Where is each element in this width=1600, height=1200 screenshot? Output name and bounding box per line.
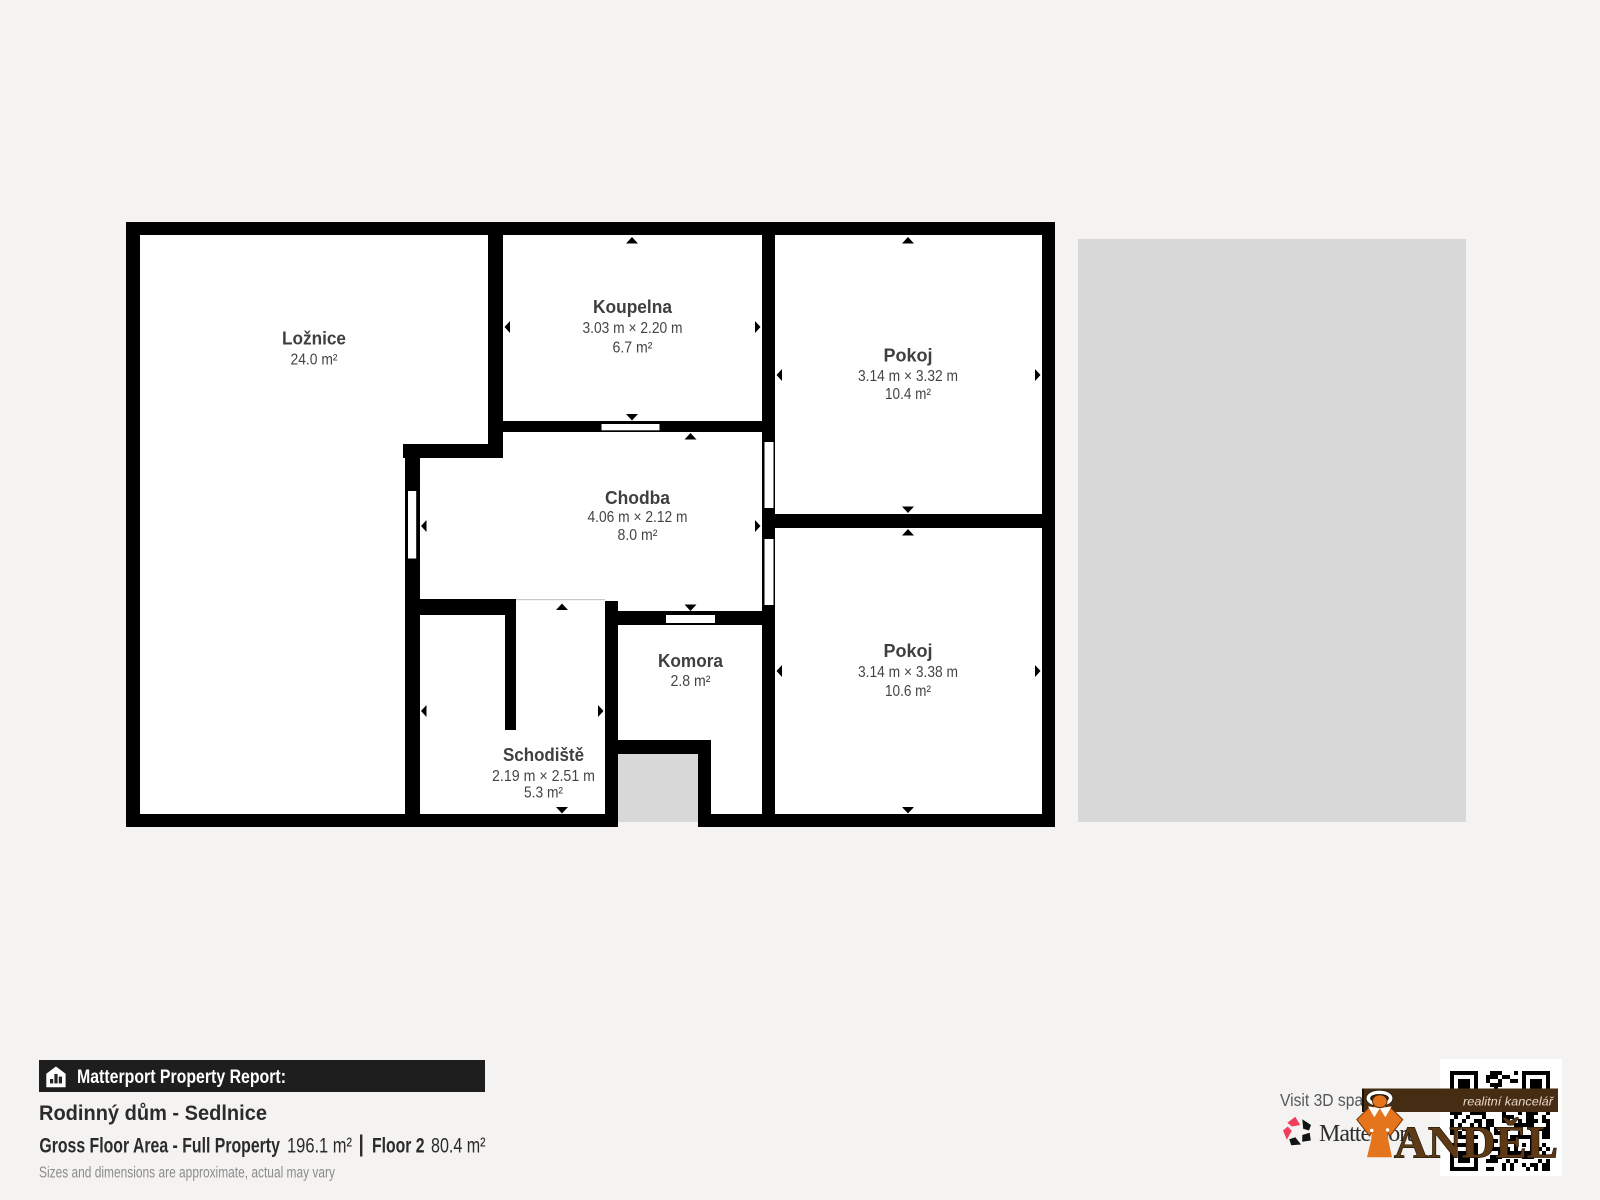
svg-text:8.0 m²: 8.0 m² bbox=[618, 527, 658, 544]
svg-text:6.7 m²: 6.7 m² bbox=[613, 340, 653, 357]
svg-text:Komora: Komora bbox=[658, 651, 724, 671]
svg-text:ANDĚL: ANDĚL bbox=[1394, 1117, 1558, 1168]
svg-text:2.19 m × 2.51 m: 2.19 m × 2.51 m bbox=[492, 768, 595, 785]
svg-text:Pokoj: Pokoj bbox=[884, 345, 933, 365]
svg-text:Ložnice: Ložnice bbox=[282, 329, 346, 349]
svg-text:2.8 m²: 2.8 m² bbox=[671, 673, 711, 690]
svg-text:Koupelna: Koupelna bbox=[593, 297, 673, 317]
svg-text:10.4 m²: 10.4 m² bbox=[885, 386, 931, 403]
svg-text:4.06 m × 2.12 m: 4.06 m × 2.12 m bbox=[588, 509, 688, 526]
svg-text:3.14 m × 3.38 m: 3.14 m × 3.38 m bbox=[858, 664, 958, 681]
svg-text:Pokoj: Pokoj bbox=[884, 641, 933, 661]
svg-text:Matterport Property Report:: Matterport Property Report: bbox=[77, 1067, 286, 1088]
svg-text:3.03 m × 2.20 m: 3.03 m × 2.20 m bbox=[583, 320, 683, 337]
svg-text:3.14 m × 3.32 m: 3.14 m × 3.32 m bbox=[858, 368, 958, 385]
svg-text:80.4 m²: 80.4 m² bbox=[431, 1135, 486, 1158]
svg-text:5.3 m²: 5.3 m² bbox=[524, 785, 563, 802]
svg-text:Schodiště: Schodiště bbox=[503, 745, 584, 765]
svg-text:24.0 m²: 24.0 m² bbox=[291, 352, 338, 369]
svg-text:196.1 m²: 196.1 m² bbox=[287, 1135, 352, 1158]
svg-text:realitní kancelář: realitní kancelář bbox=[1463, 1097, 1554, 1109]
svg-text:Sizes and dimensions are appro: Sizes and dimensions are approximate, ac… bbox=[39, 1165, 335, 1182]
svg-text:Chodba: Chodba bbox=[605, 488, 671, 508]
svg-text:Floor 2: Floor 2 bbox=[372, 1135, 425, 1158]
svg-text:10.6 m²: 10.6 m² bbox=[885, 683, 931, 700]
svg-text:Gross Floor Area - Full Proper: Gross Floor Area - Full Property bbox=[39, 1135, 280, 1158]
svg-text:Rodinný dům - Sedlnice: Rodinný dům - Sedlnice bbox=[39, 1101, 267, 1125]
